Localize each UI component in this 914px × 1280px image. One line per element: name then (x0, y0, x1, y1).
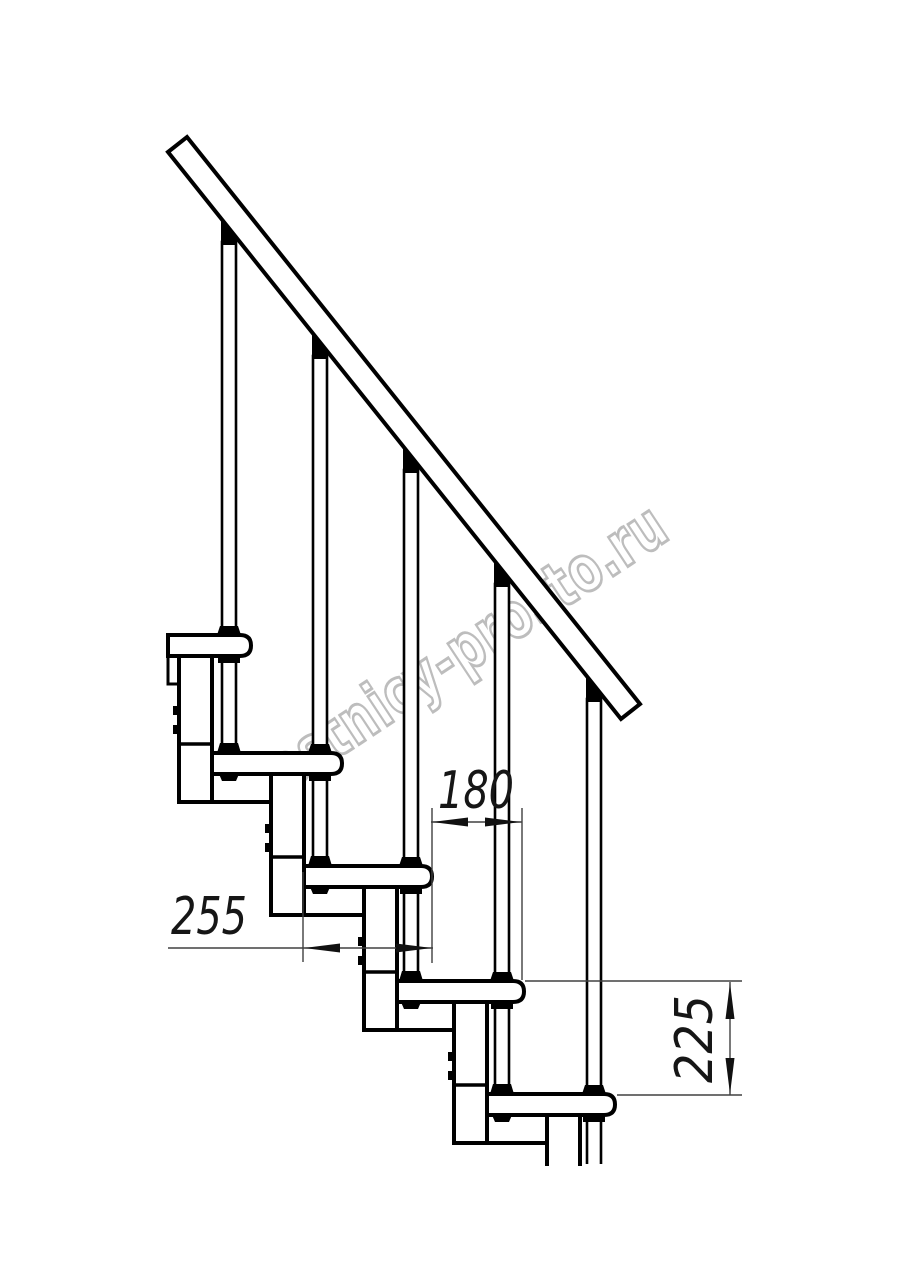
baluster-post (587, 699, 601, 1094)
tread (168, 635, 251, 656)
technical-drawing-page: lestnicy-prosto.ru (0, 0, 914, 1280)
tread (212, 753, 342, 774)
dimension-label-180: 180 (438, 761, 514, 821)
staircase-technical-drawing: lestnicy-prosto.ru (0, 0, 914, 1280)
tread (487, 1094, 615, 1115)
baluster-post (313, 356, 327, 753)
tread (304, 866, 432, 887)
dimension-step-height: 225 (525, 981, 742, 1095)
baluster-post (222, 242, 236, 635)
dimension-label-225: 225 (665, 995, 725, 1083)
module-box (454, 1002, 487, 1143)
dimension-label-255: 255 (171, 887, 247, 947)
baluster-post (404, 470, 418, 866)
module-box (547, 1115, 580, 1166)
module-box (179, 656, 212, 802)
module-box (271, 774, 304, 915)
tread (397, 981, 524, 1002)
module-box (364, 887, 397, 1030)
